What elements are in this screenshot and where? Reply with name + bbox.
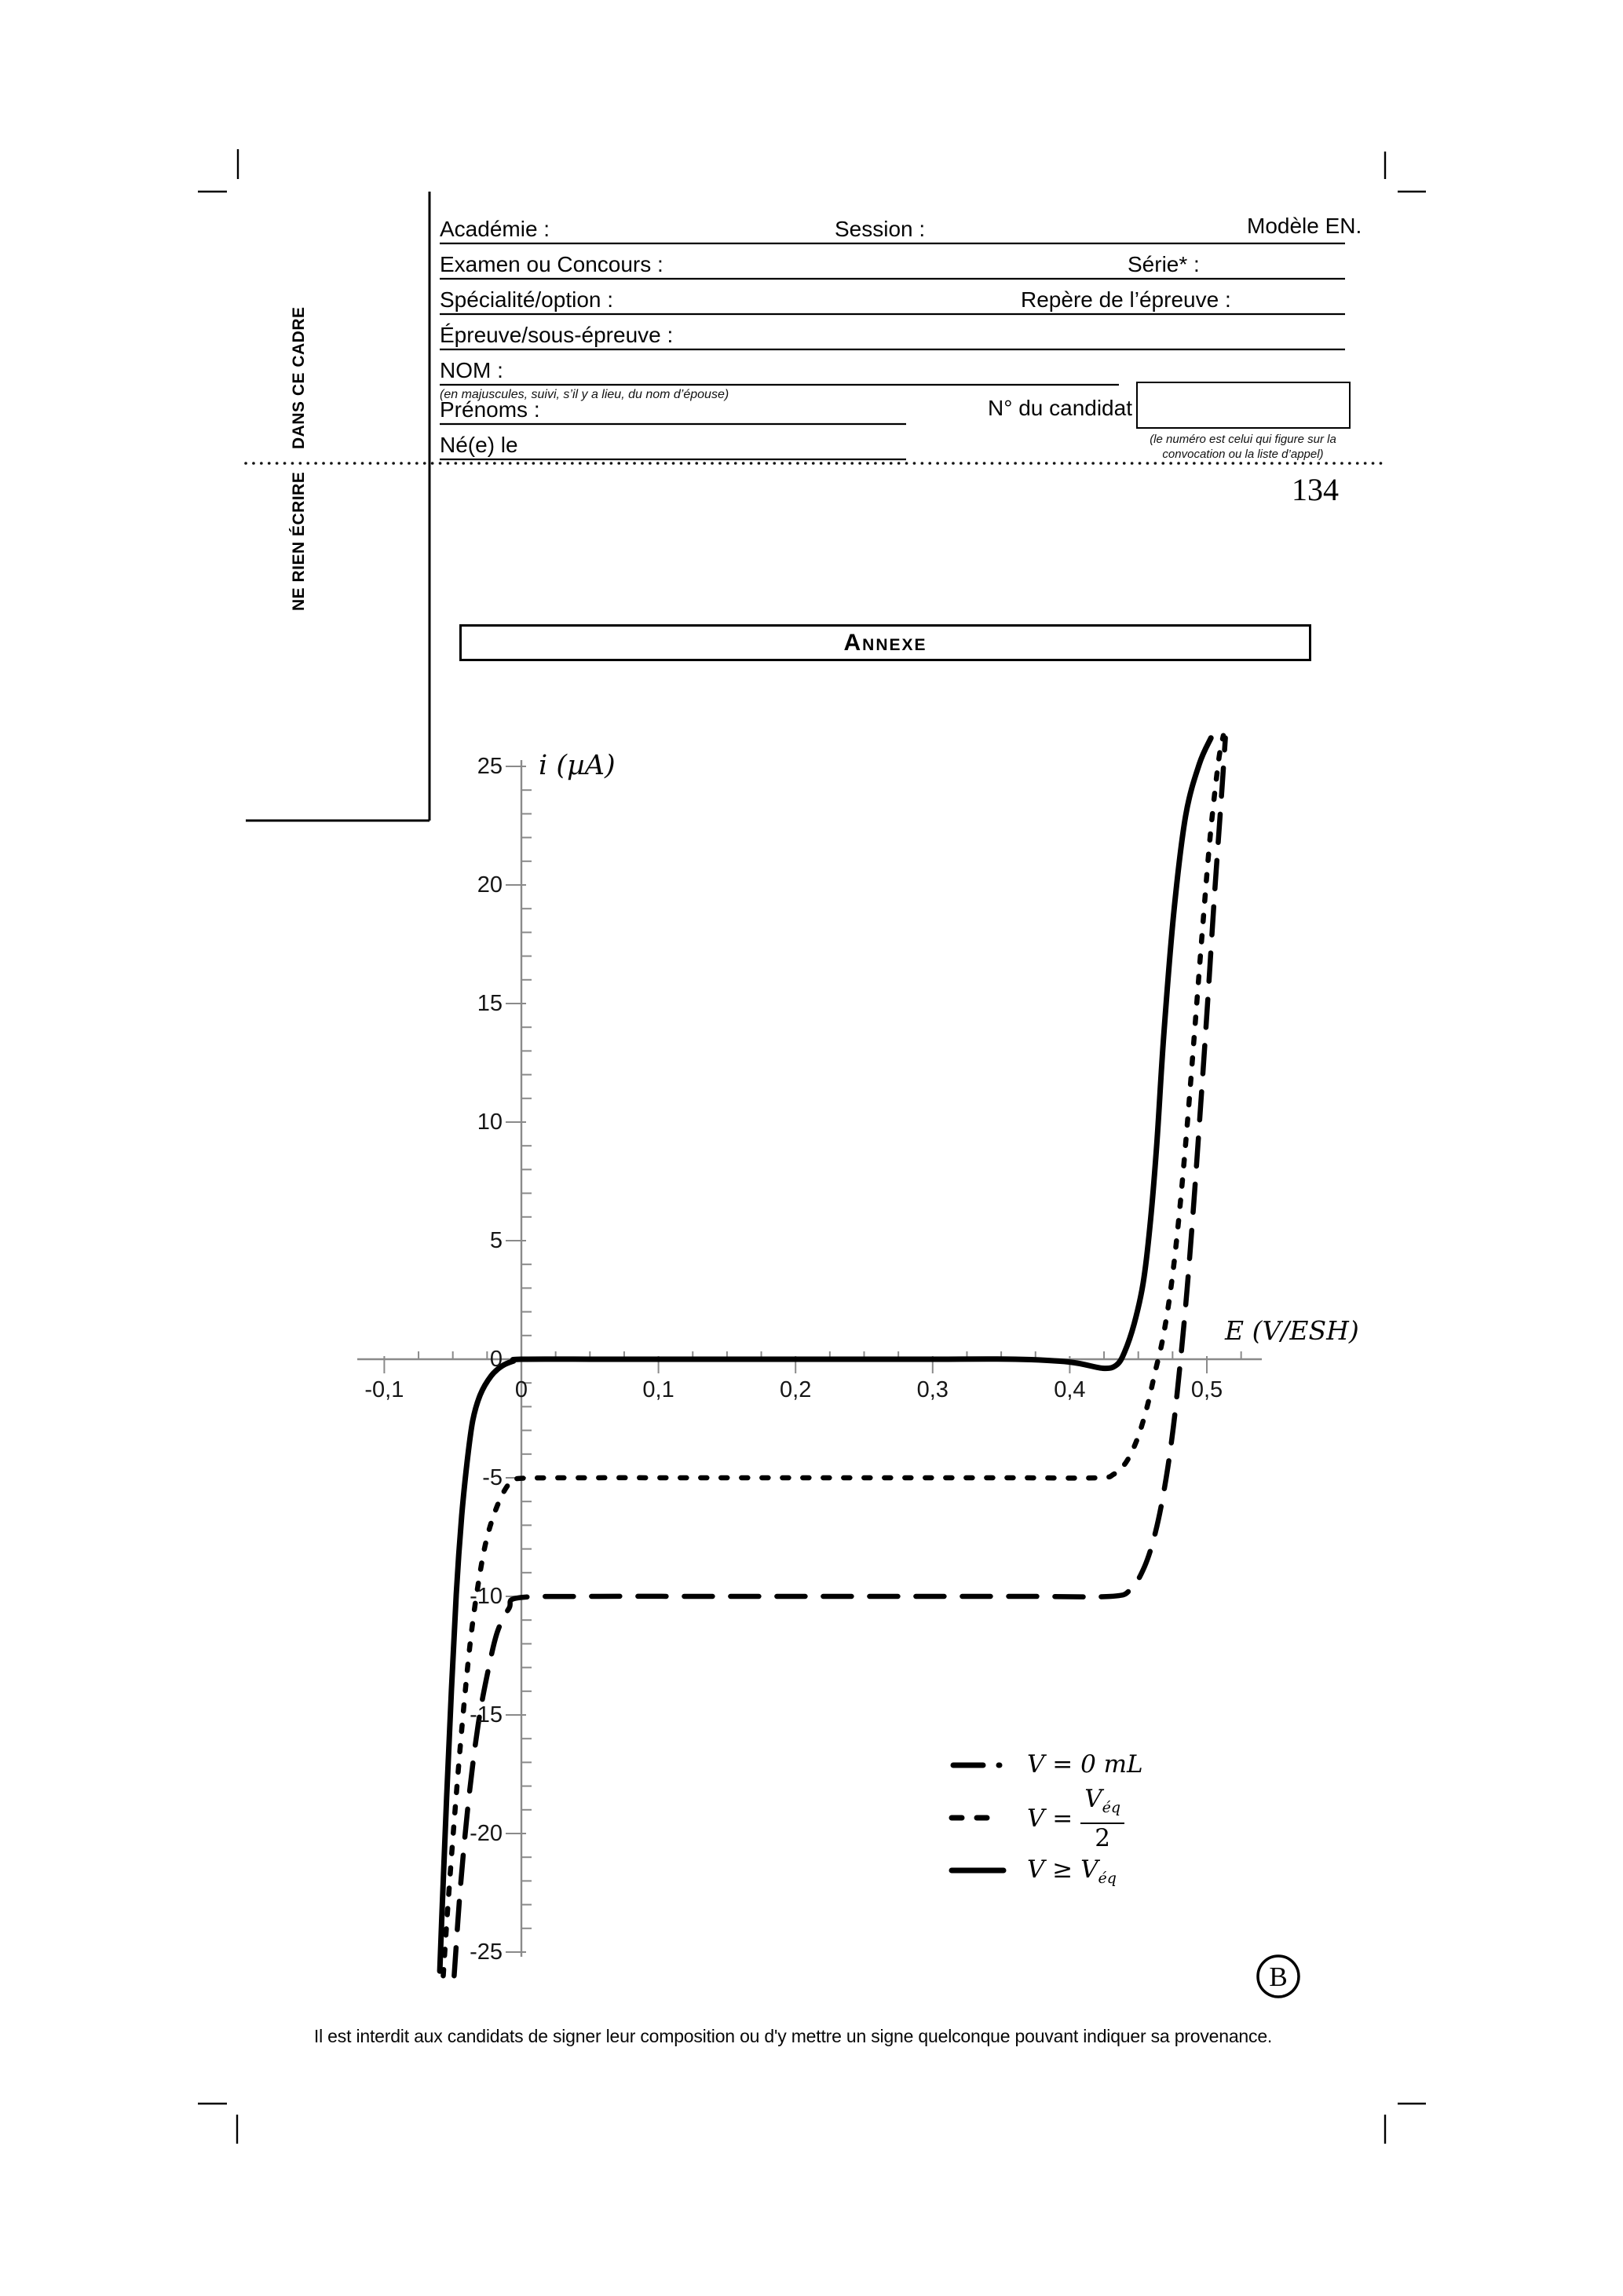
margin-text-ne-rien-ecrire: NE RIEN ÉCRIRE xyxy=(289,482,309,611)
x-tick-label: 0,2 xyxy=(758,1377,833,1402)
y-tick-label: 15 xyxy=(446,991,503,1016)
page-number: 134 xyxy=(1292,471,1339,508)
y-tick-label: -20 xyxy=(446,1821,503,1846)
x-tick-label: 0 xyxy=(484,1377,559,1402)
margin-text-dans-ce-cadre: DANS CE CADRE xyxy=(289,320,309,449)
field-label-specialite: Spécialité/option : xyxy=(440,287,613,313)
page-graphics xyxy=(0,0,1623,2296)
x-tick-label: 0,3 xyxy=(895,1377,971,1402)
legend-item-veq2-fraction: Véq 2 xyxy=(1080,1787,1124,1849)
y-axis-title: i (µA) xyxy=(539,750,616,781)
y-tick-label: -15 xyxy=(446,1702,503,1727)
legend-samples xyxy=(952,1765,1003,1870)
y-tick-label: -10 xyxy=(446,1584,503,1609)
fraction-denominator: 2 xyxy=(1080,1824,1124,1850)
scanned-exam-annex-sheet: DANS CE CADRE NE RIEN ÉCRIRE Académie : … xyxy=(0,0,1623,2296)
y-tick-label: 5 xyxy=(446,1228,503,1253)
legend-item-veq: V ≥ Véq xyxy=(1027,1855,1117,1887)
x-tick-label: -0,1 xyxy=(346,1377,422,1402)
cadre-border xyxy=(246,192,430,821)
y-tick-label: 25 xyxy=(446,754,503,779)
annexe-title-box: Annexe xyxy=(459,624,1311,661)
field-label-examen: Examen ou Concours : xyxy=(440,252,663,277)
legend-item-veq2-prefix: V = xyxy=(1027,1804,1073,1833)
y-tick-label: -5 xyxy=(446,1465,503,1490)
field-label-prenoms: Prénoms : xyxy=(440,397,540,422)
corner-letter: B xyxy=(1259,1960,1297,1994)
field-label-session: Session : xyxy=(835,217,925,242)
candidate-number-note-line1: (le numéro est celui qui figure sur la xyxy=(1150,433,1336,446)
y-tick-label: -25 xyxy=(446,1940,503,1965)
model-label: Modèle EN. xyxy=(1247,214,1362,239)
field-label-serie: Série* : xyxy=(1128,252,1200,277)
candidate-number-box xyxy=(1136,382,1351,429)
field-label-epreuve: Épreuve/sous-épreuve : xyxy=(440,323,673,348)
x-axis-title: E (V/ESH) xyxy=(1225,1315,1359,1346)
x-tick-label: 0,4 xyxy=(1032,1377,1107,1402)
legend-item-veq2: V = Véq 2 xyxy=(1027,1796,1124,1841)
candidate-number-note: (le numéro est celui qui figure sur la c… xyxy=(1106,432,1380,462)
footer-warning: Il est interdit aux candidats de signer … xyxy=(304,2026,1282,2047)
field-label-repere: Repère de l’épreuve : xyxy=(1021,287,1231,313)
field-label-ne-le: Né(e) le xyxy=(440,433,518,458)
field-label-candidat: N° du candidat xyxy=(988,396,1132,421)
candidate-number-note-line2: convocation ou la liste d’appel) xyxy=(1162,448,1323,461)
x-tick-label: 0,1 xyxy=(621,1377,696,1402)
y-tick-label: 10 xyxy=(446,1110,503,1135)
field-label-academie: Académie : xyxy=(440,217,550,242)
y-tick-label: 20 xyxy=(446,872,503,898)
x-tick-label: 0,5 xyxy=(1169,1377,1245,1402)
legend-item-v0: V = 0 mL xyxy=(1027,1750,1143,1779)
field-label-nom: NOM : xyxy=(440,358,503,383)
fraction-numerator: Véq xyxy=(1080,1787,1124,1823)
y-tick-label: 0 xyxy=(446,1347,503,1372)
